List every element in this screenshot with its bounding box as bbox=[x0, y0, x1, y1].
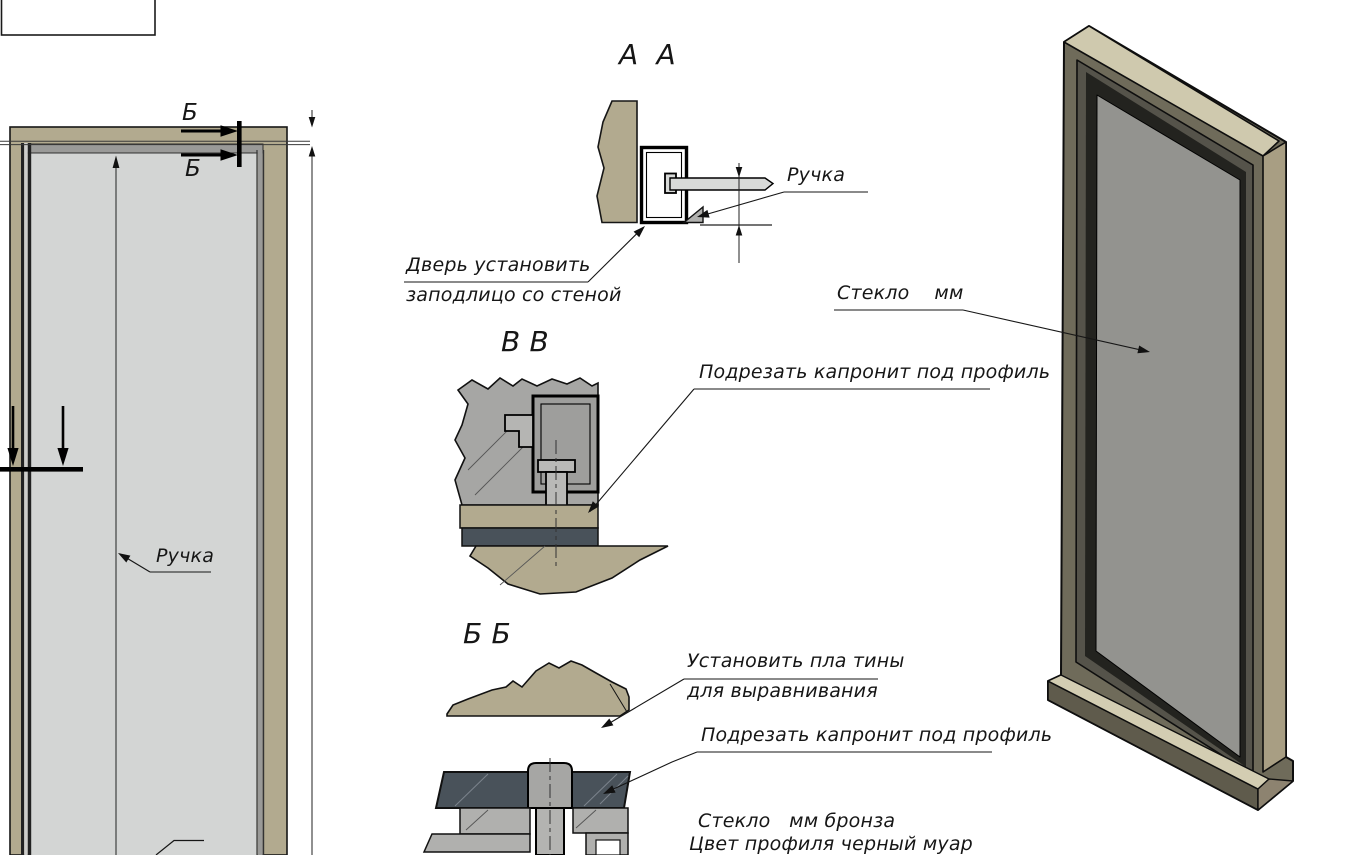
section-vv-title: В В bbox=[501, 328, 549, 356]
iso-door-view bbox=[1048, 26, 1293, 810]
note-trim-vv: Подрезать капронит под профиль bbox=[699, 363, 1050, 382]
note-glass-line1: Стекло мм бронза bbox=[698, 812, 895, 831]
section-bb-title: Б Б bbox=[463, 620, 511, 648]
glass-label-iso: Стекло мм bbox=[837, 284, 964, 303]
section-mark-label-b-top: Б bbox=[182, 102, 198, 125]
note-glass-line2: Цвет профиля черный муар bbox=[689, 835, 973, 854]
section-mark-label-b-bottom: Б bbox=[185, 158, 201, 181]
section-aa-view bbox=[597, 101, 773, 263]
note-trim-bb: Подрезать капронит под профиль bbox=[701, 726, 1052, 745]
section-bb-view bbox=[424, 661, 630, 855]
cad-drawing-sheet: Б Б Ручка А А Ручка Дверь установить зап… bbox=[0, 0, 1351, 855]
drawing-linework bbox=[0, 0, 1351, 855]
note-plates-line2: для выравнивания bbox=[687, 682, 878, 701]
note-flush-line1: Дверь установить bbox=[406, 256, 591, 275]
note-plates-line1: Установить пла тины bbox=[687, 652, 905, 671]
section-aa-title: А А bbox=[619, 41, 676, 69]
door-elevation-view bbox=[0, 127, 310, 855]
sheet-corner-box bbox=[2, 0, 156, 35]
elevation-dimension bbox=[309, 110, 316, 855]
note-flush-line2: заподлицо со стеной bbox=[406, 286, 622, 305]
handle-label-aa: Ручка bbox=[787, 166, 845, 185]
handle-label-elevation: Ручка bbox=[156, 547, 214, 566]
section-vv-view bbox=[455, 378, 668, 594]
